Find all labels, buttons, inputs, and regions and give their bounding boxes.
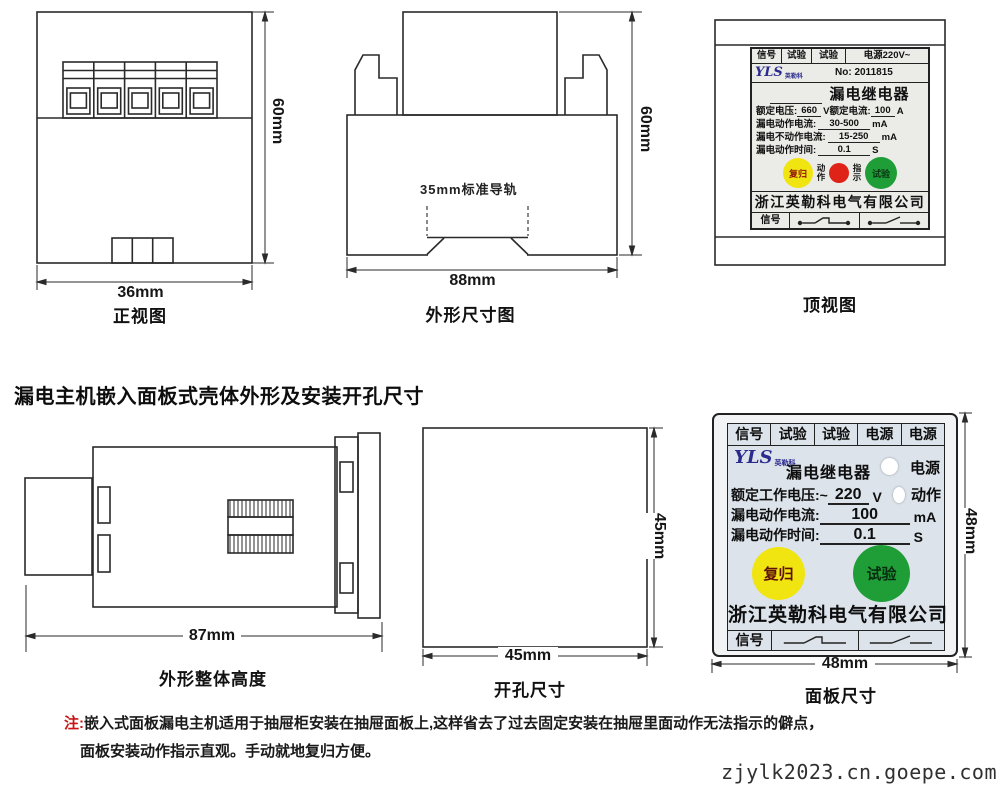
top-view-caption: 顶视图 [788,291,872,316]
footnote-line1: 注:嵌入式面板漏电主机适用于抽屉柜安装在抽屉面板上,这样省去了过去固定安装在抽屉… [64,716,944,731]
front-view-drawing [37,12,252,263]
spec-trip-current-row: 漏电动作电流: 100 mA [728,505,944,525]
terminal-cell: 电源 [858,424,901,445]
top-view-nameplate: 信号 试验 试验 电源220V~ YLS英勒科 No: 2011815 漏电继电… [750,47,930,230]
note-prefix: 注: [64,715,84,732]
front-panel-face: 信号 试验 试验 电源 电源 YLS英勒科 漏电继电器 电源 额定工作电压:~ … [727,423,945,651]
brand-logo: YLS英勒科 [755,65,803,80]
outline-height-dim: 60mm [636,106,654,152]
outline-view-drawing [347,12,617,257]
cutout-width-dim: 45mm [498,647,558,665]
serial-number: No: 2011815 [803,67,925,78]
terminal-marking-row: 信号 试验 试验 电源 电源 [728,424,944,446]
power-led [881,458,898,475]
product-name: 漏电继电器 [829,83,909,104]
front-view-caption: 正视图 [95,302,185,327]
test-button: 试验 [865,157,897,189]
contact-symbol-cell [860,213,929,228]
panel-height-dim: 48mm [956,508,984,554]
product-title-row: 漏电继电器 [752,83,928,104]
front-view-dimensions [37,12,274,290]
trip-current-value: 30-500 [818,118,870,130]
trip-current-value: 100 [820,506,910,525]
indicate-label: 指示 [852,164,862,182]
spec-trip-time-row: 漏电动作时间: 0.1 S [728,525,944,545]
outline-view-caption: 外形尺寸图 [413,301,528,326]
switch-contact-icon [776,633,854,648]
switch-contact-icon [866,214,922,227]
trip-time-value: 0.1 [818,144,870,156]
footnote: 注:嵌入式面板漏电主机适用于抽屉柜安装在抽屉面板上,这样省去了过去固定安装在抽屉… [64,716,944,759]
button-row: 复归 试验 [728,545,944,602]
action-led-label: 动作 [911,484,941,505]
terminal-cell: 电源220V~ [846,49,928,63]
product-name: 漏电继电器 [786,459,871,483]
front-height-dim: 60mm [268,98,286,144]
signal-contact-row: 信号 [752,213,928,228]
contact-symbol-cell [790,213,860,228]
terminal-cell: 信号 [728,424,771,445]
signal-label: 信号 [728,631,772,650]
power-led-label: 电源 [910,457,940,478]
switch-contact-icon [796,214,852,227]
terminal-cell: 信号 [752,49,782,63]
trip-time-value: 0.1 [820,526,910,545]
profile-caption: 外形整体高度 [148,665,278,690]
non-trip-current-value: 15-250 [828,131,880,143]
reset-button: 复归 [783,158,813,188]
switch-contact-icon [862,633,940,648]
brand-row: YLS英勒科 No: 2011815 [752,64,928,83]
spec-trip-time-row: 漏电动作时间: 0.1 S [752,143,928,156]
profile-view-drawing [25,433,380,618]
front-width-dim: 36mm [108,284,173,302]
outline-width-dim: 88mm [440,272,505,290]
rated-current-value: 100 [871,105,895,117]
panel-caption: 面板尺寸 [796,682,886,707]
cutout-caption: 开孔尺寸 [485,676,575,701]
contact-symbol-cell [772,631,859,650]
front-panel-bezel: 信号 试验 试验 电源 电源 YLS英勒科 漏电继电器 电源 额定工作电压:~ … [712,413,958,657]
din-rail-label: 35mm标准导轨 [420,179,530,198]
terminal-marking-row: 信号 试验 试验 电源220V~ [752,49,928,64]
test-button: 试验 [853,545,910,602]
brand-logo-subtext: 英勒科 [785,73,803,80]
terminal-cell: 试验 [812,49,846,63]
terminal-cell: 试验 [815,424,858,445]
button-row: 复归 动作 指示 试验 [752,156,928,191]
cutout-height-dim: 45mm [645,513,673,559]
terminal-cell: 试验 [782,49,812,63]
datasheet-page: 60mm 36mm 正视图 35mm标准导轨 60mm 88mm 外形尺寸图 顶… [0,0,1000,793]
profile-width-dim: 87mm [183,627,241,645]
terminal-cell: 电源 [902,424,944,445]
company-name: 浙江英勒科电气有限公司 [728,602,944,630]
spec-working-voltage-row: 额定工作电压:~ 220 V 动作 [728,484,944,505]
cutout-drawing [423,428,647,647]
signal-label: 信号 [752,213,790,228]
brand-row: YLS英勒科 漏电继电器 电源 [728,446,944,484]
reset-button: 复归 [752,547,805,600]
panel-width-dim: 48mm [815,655,875,673]
action-led [893,487,905,503]
watermark: zjylk2023.cn.goepe.com [712,760,997,784]
action-label: 动作 [816,164,826,182]
section-title: 漏电主机嵌入面板式壳体外形及安装开孔尺寸 [14,380,424,409]
contact-symbol-cell [859,631,945,650]
working-voltage-value: 220 [828,486,869,505]
company-name: 浙江英勒科电气有限公司 [752,191,928,213]
action-indicator-lamp [829,163,849,183]
footnote-line2: 面板安装动作指示直观。手动就地复归方便。 [64,744,944,759]
cutout-dimensions [423,428,663,666]
signal-contact-row: 信号 [728,630,944,650]
terminal-cell: 试验 [771,424,814,445]
